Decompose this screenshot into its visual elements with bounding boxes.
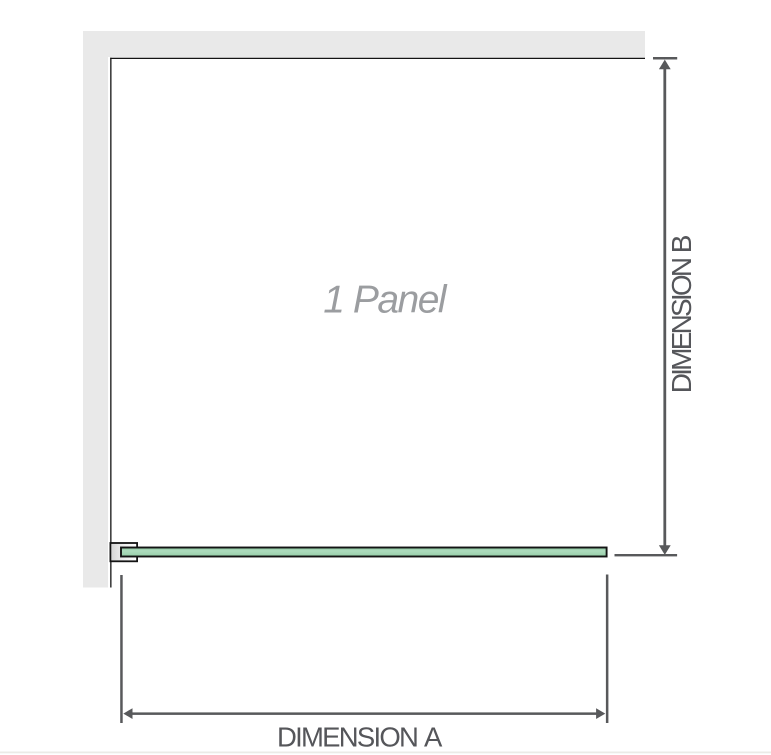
svg-text:1 Panel: 1 Panel [323, 279, 448, 322]
svg-text:DIMENSION A: DIMENSION A [277, 721, 443, 752]
svg-text:DIMENSION B: DIMENSION B [666, 235, 697, 393]
